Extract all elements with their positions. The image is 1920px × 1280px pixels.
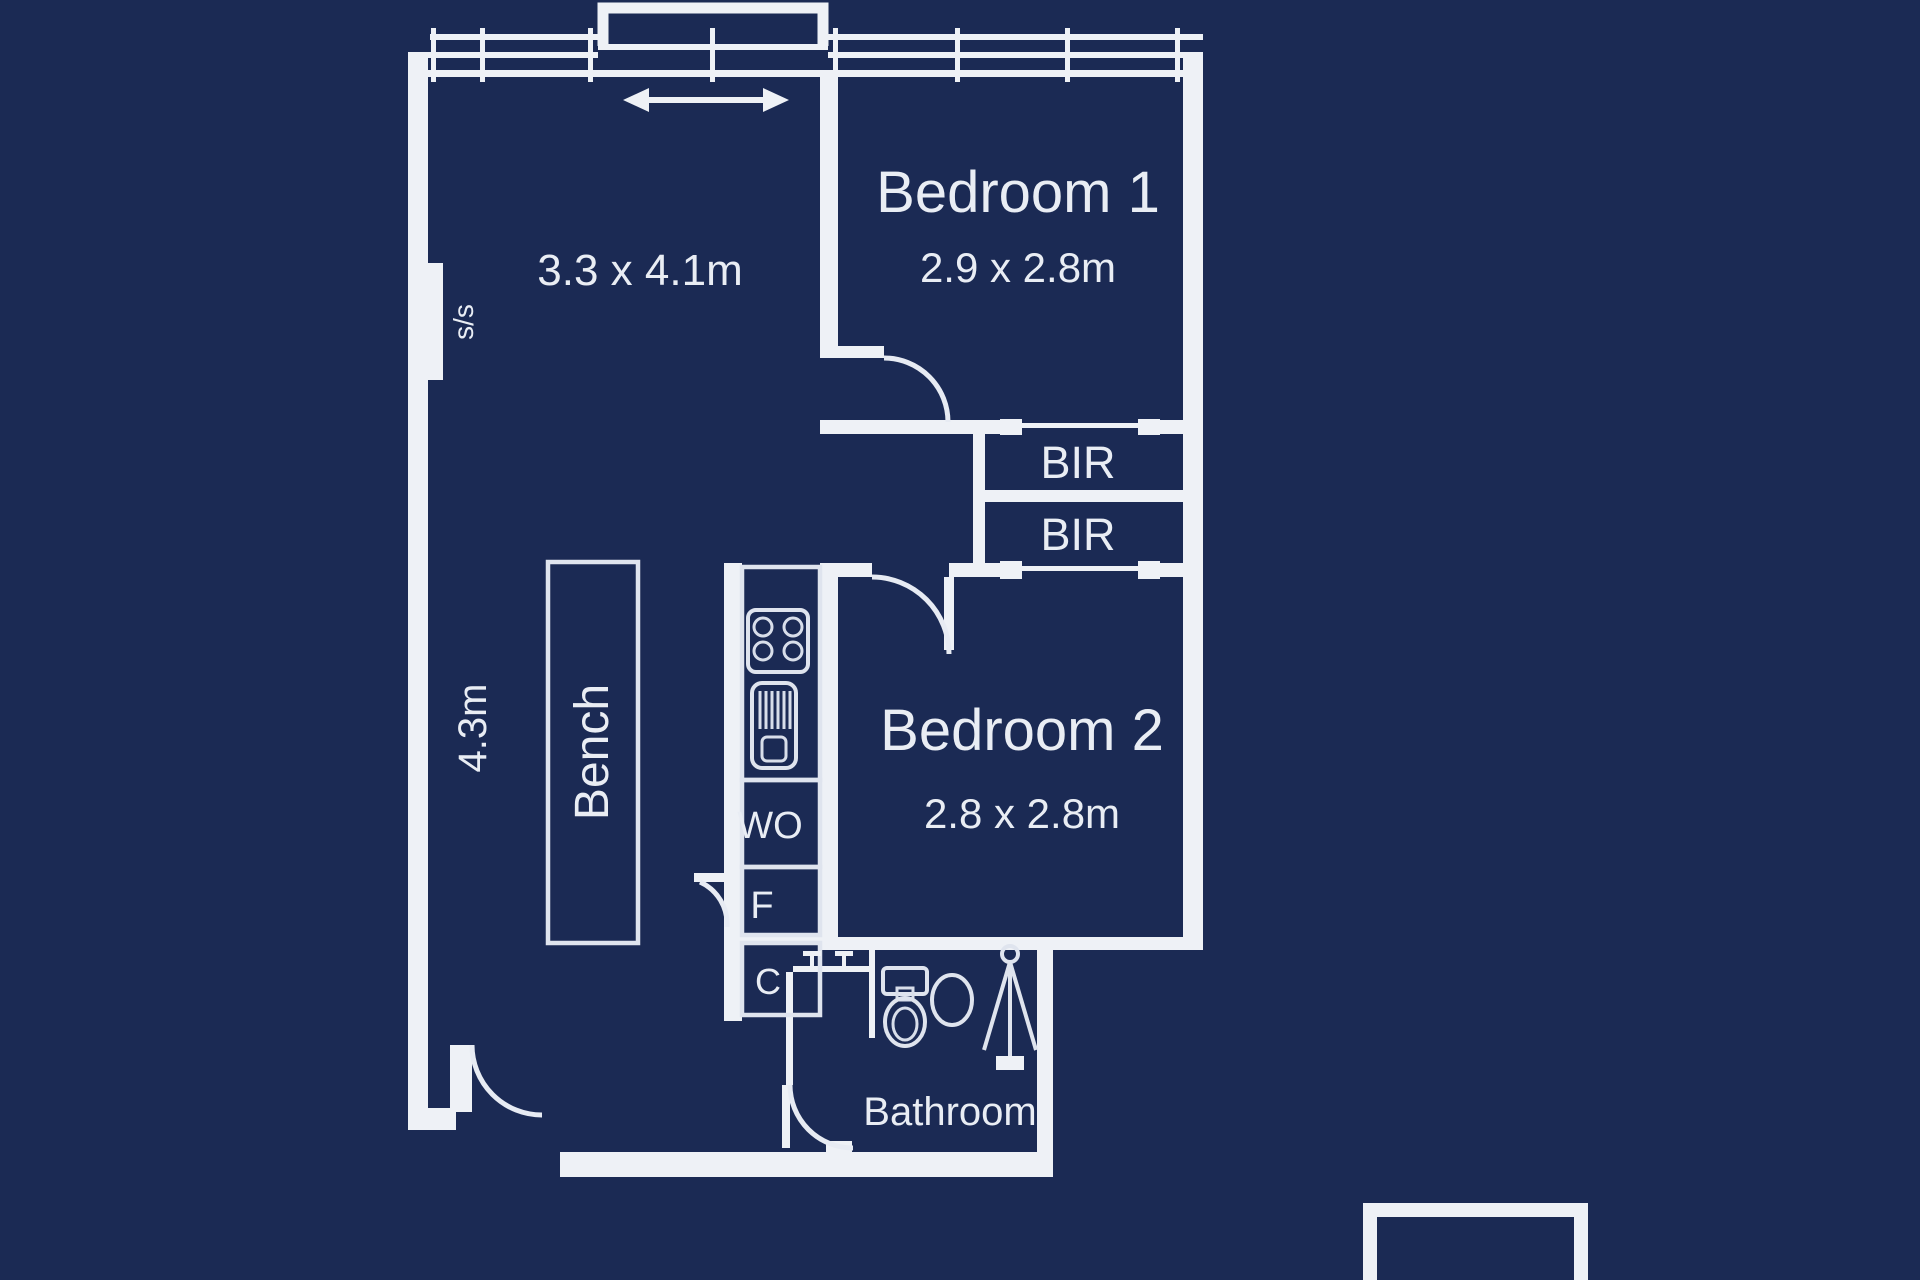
wall-oven-label: WO <box>737 805 802 847</box>
bedroom1-door-jamb <box>820 346 884 358</box>
window-line <box>828 34 1203 40</box>
left-wall-return <box>408 1108 456 1130</box>
window-tick <box>1065 28 1070 82</box>
bedroom1-bottom-wall-end <box>1158 420 1203 434</box>
floor-plan: 3.3 x 4.1m 4.3m s/s Bench Bedroom 1 2.9 … <box>0 0 1920 1280</box>
sink-icon <box>752 683 796 768</box>
bir1-opening-line <box>1020 423 1140 428</box>
bathroom-label: Bathroom <box>863 1090 1036 1134</box>
vanity-side <box>869 950 875 1038</box>
entry-door-leaf <box>450 1045 472 1112</box>
wall-cap <box>1000 561 1022 579</box>
floor-plan-drawing: 3.3 x 4.1m 4.3m s/s Bench Bedroom 1 2.9 … <box>0 0 1920 1280</box>
bedroom2-top-wall-end <box>1158 563 1203 577</box>
service-panel <box>408 263 443 380</box>
toilet-icon <box>883 968 927 1046</box>
basin-icon <box>932 975 972 1025</box>
bathroom-left-wall <box>786 972 793 1085</box>
bir2-opening-line <box>1020 566 1140 571</box>
bir1-label: BIR <box>1040 437 1115 488</box>
bedroom2-dims-label: 2.8 x 2.8m <box>924 790 1120 837</box>
bedroom1-dims-label: 2.9 x 2.8m <box>920 244 1116 291</box>
internal-wall-lower <box>820 563 838 950</box>
wall-cap <box>1138 419 1160 435</box>
wall-cap <box>1000 419 1022 435</box>
window-tick <box>480 28 485 82</box>
partial-structure-outline <box>1370 1210 1581 1280</box>
cupboard-label: C <box>755 961 781 1002</box>
bathroom-fixtures <box>803 946 1036 1070</box>
bedroom2-top-wall-mid <box>949 563 1002 577</box>
window-tick <box>955 28 960 82</box>
window-tick <box>431 28 436 82</box>
door-swings <box>472 358 949 1148</box>
labels: 3.3 x 4.1m 4.3m s/s Bench Bedroom 1 2.9 … <box>448 160 1164 1134</box>
window-assembly <box>428 8 1203 112</box>
window-line <box>828 70 1203 77</box>
bedroom2-label: Bedroom 2 <box>880 698 1164 763</box>
sliding-door-arrow-icon <box>623 88 789 112</box>
internal-wall-upper <box>820 72 838 346</box>
wall-cap <box>1138 561 1160 579</box>
bedroom1-door-arc <box>884 358 948 422</box>
bir2-label: BIR <box>1040 509 1115 560</box>
window-line <box>428 70 598 77</box>
shower-icon <box>984 946 1036 1070</box>
window-tick <box>588 28 593 82</box>
bedroom2-door-arc <box>872 577 949 654</box>
bench-label: Bench <box>566 684 619 820</box>
living-depth-label: 4.3m <box>451 684 495 773</box>
window-line <box>828 52 1203 58</box>
window-line <box>428 52 598 58</box>
bir-divider-wall <box>973 490 1203 502</box>
fridge-door-arc <box>700 882 727 927</box>
bottom-wall <box>560 1152 1053 1177</box>
bedroom1-label: Bedroom 1 <box>876 160 1160 225</box>
living-dims-label: 3.3 x 4.1m <box>537 246 742 295</box>
bathroom-right-wall <box>1037 950 1053 1177</box>
service-panel-label: s/s <box>448 304 479 340</box>
bathroom-door-arc <box>790 1085 853 1148</box>
window-tick <box>1175 28 1180 82</box>
fridge-label: F <box>750 885 773 927</box>
window-tick <box>710 28 715 82</box>
vanity-counter <box>793 966 874 972</box>
cooktop-icon <box>748 610 808 672</box>
window-tick <box>833 28 838 82</box>
kitchen-wall <box>724 563 742 1021</box>
left-wall <box>408 52 428 1108</box>
fridge-door-jamb <box>694 873 727 882</box>
entry-door-arc <box>472 1045 542 1115</box>
window-line <box>430 34 598 40</box>
